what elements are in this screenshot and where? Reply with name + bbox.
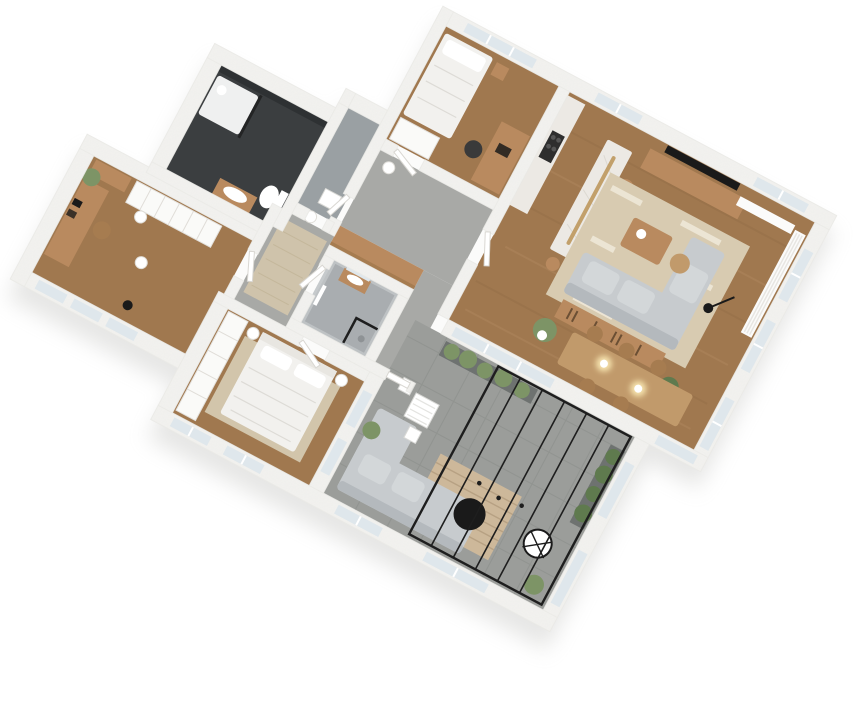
door-living — [484, 232, 490, 266]
floor-plan-render — [0, 0, 856, 722]
floor-plan-canvas — [0, 0, 856, 722]
